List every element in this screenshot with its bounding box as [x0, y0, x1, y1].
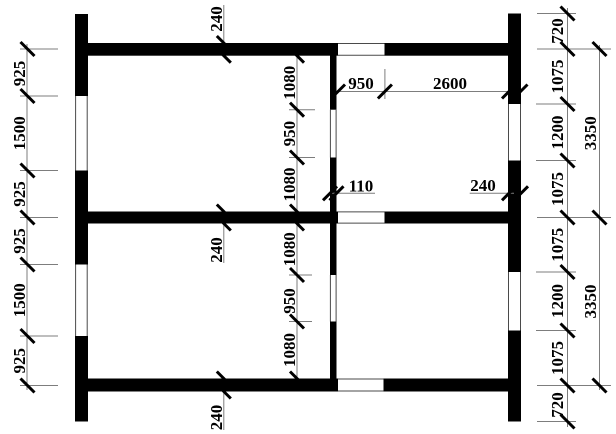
svg-text:950: 950 [348, 74, 374, 93]
svg-text:240: 240 [207, 6, 226, 32]
svg-text:110: 110 [349, 177, 374, 196]
svg-text:925: 925 [10, 228, 29, 254]
svg-text:3350: 3350 [581, 285, 600, 319]
svg-text:1080: 1080 [280, 66, 299, 100]
svg-text:240: 240 [207, 405, 226, 431]
svg-text:240: 240 [207, 237, 226, 263]
svg-text:2600: 2600 [433, 74, 467, 93]
svg-text:950: 950 [280, 121, 299, 147]
svg-text:240: 240 [470, 176, 496, 195]
svg-text:720: 720 [548, 392, 567, 418]
svg-text:1075: 1075 [548, 60, 567, 94]
svg-text:925: 925 [10, 348, 29, 374]
svg-text:1080: 1080 [280, 333, 299, 367]
svg-text:720: 720 [548, 18, 567, 44]
svg-text:1075: 1075 [548, 228, 567, 262]
svg-text:1200: 1200 [548, 116, 567, 150]
svg-text:925: 925 [10, 61, 29, 87]
svg-text:1075: 1075 [548, 172, 567, 206]
svg-text:925: 925 [10, 181, 29, 207]
svg-text:1080: 1080 [280, 232, 299, 266]
svg-text:1500: 1500 [10, 116, 29, 150]
svg-text:1200: 1200 [548, 284, 567, 318]
svg-text:3350: 3350 [581, 116, 600, 150]
svg-text:950: 950 [280, 288, 299, 314]
svg-text:1080: 1080 [280, 168, 299, 202]
svg-text:1075: 1075 [548, 341, 567, 375]
svg-text:1500: 1500 [10, 283, 29, 317]
